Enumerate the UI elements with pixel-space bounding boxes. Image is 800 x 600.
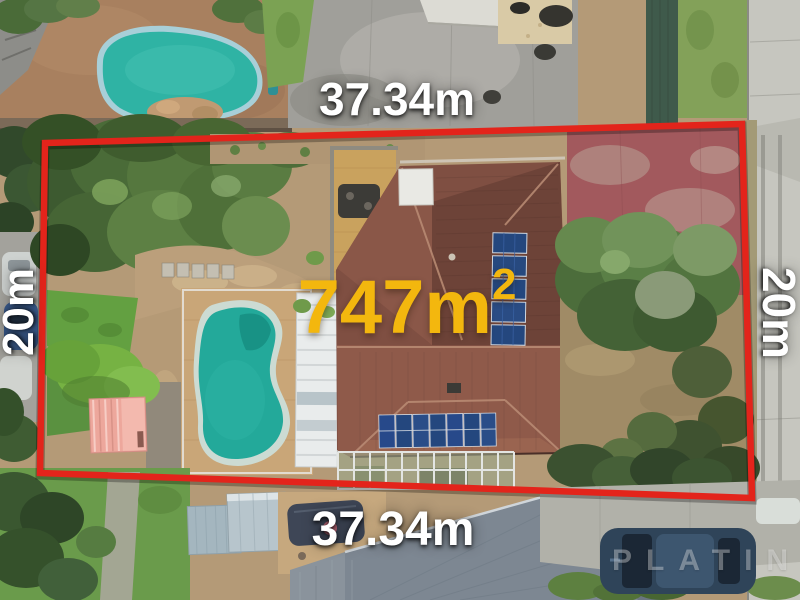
roof-skylight: [399, 169, 434, 206]
top-right-verge: [646, 0, 748, 126]
pink-shed: [89, 397, 147, 453]
area-value: 747m: [298, 265, 492, 350]
solar-array-south: [379, 413, 497, 448]
agave-plant: [306, 251, 324, 265]
left-dimension-label: 20m: [0, 268, 41, 356]
garden-steps: [162, 263, 234, 279]
area-exponent: 2: [492, 260, 516, 309]
neighbor-pool-yard: [0, 0, 292, 132]
top-dimension-label: 37.34m: [319, 76, 475, 122]
nature-strip-grass: [678, 0, 748, 118]
bottom-left-yard: [0, 468, 190, 600]
pool-area: [181, 288, 313, 475]
shrub-cluster: [555, 212, 740, 352]
bottom-dimension-label: 37.34m: [312, 506, 475, 554]
green-fence: [646, 0, 678, 126]
roof-unit: [447, 383, 461, 393]
area-label: 747m2: [298, 270, 517, 346]
aerial-property-photo: 37.34m 37.34m 20m 20m 747m2 PLATINUM: [0, 0, 800, 600]
parked-car-far: [756, 498, 800, 524]
watermark: PLATINUM: [612, 544, 800, 578]
roof-vent: [449, 254, 456, 261]
dark-equipment: [539, 5, 573, 27]
neighbor-roof-white: [420, 0, 508, 26]
right-dimension-label: 20m: [756, 267, 800, 359]
